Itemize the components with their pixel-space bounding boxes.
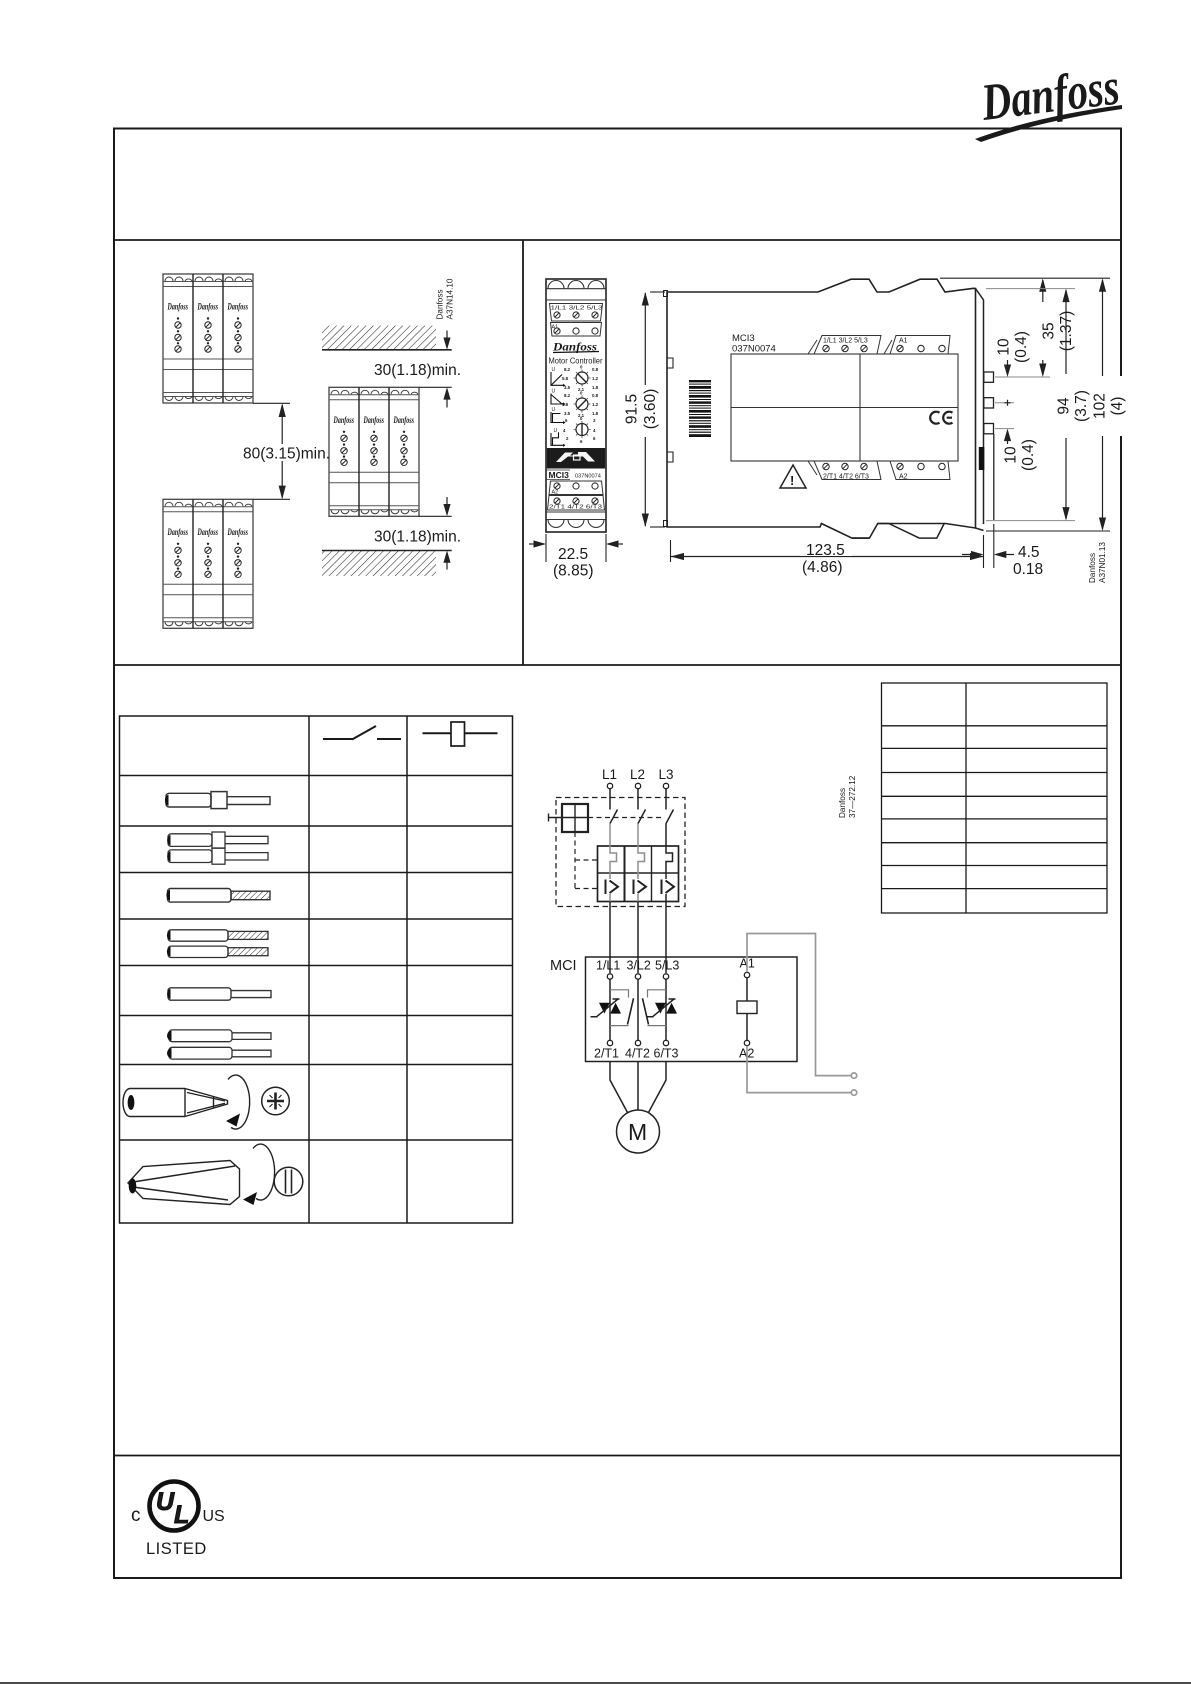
svg-text:1/L1 3/L2 5/L3: 1/L1 3/L2 5/L3	[823, 338, 868, 345]
svg-text:5/L3: 5/L3	[655, 959, 679, 973]
svg-text:2/T1: 2/T1	[594, 1047, 619, 1061]
svg-text:1/L1 3/L2 5/L3: 1/L1 3/L2 5/L3	[551, 306, 603, 312]
svg-text:1/L1: 1/L1	[596, 959, 620, 973]
svg-text:10: 10	[1003, 446, 1020, 464]
svg-text:30(1.18)min.: 30(1.18)min.	[374, 362, 461, 379]
svg-text:(8.85): (8.85)	[553, 563, 594, 580]
svg-text:1.8: 1.8	[592, 385, 599, 390]
svg-text:0.18: 0.18	[1013, 561, 1043, 578]
svg-text:2/T1 4/T2 6/T3: 2/T1 4/T2 6/T3	[549, 505, 602, 511]
svg-text:91.5: 91.5	[624, 394, 641, 424]
svg-text:(0.4): (0.4)	[1013, 331, 1030, 363]
svg-text:(4): (4)	[1109, 397, 1126, 416]
svg-text:M: M	[628, 1119, 647, 1145]
svg-text:L1: L1	[602, 767, 617, 782]
svg-text:US: US	[203, 1508, 225, 1525]
svg-text:4.5: 4.5	[1018, 544, 1040, 561]
svg-text:U: U	[552, 389, 556, 395]
svg-text:0.8: 0.8	[592, 393, 599, 398]
svg-text:30(1.18)min.: 30(1.18)min.	[374, 529, 461, 546]
svg-text:94: 94	[1056, 397, 1073, 415]
svg-text:Danfoss: Danfoss	[838, 788, 847, 818]
svg-text:c: c	[131, 1505, 141, 1526]
svg-text:L: L	[174, 1501, 189, 1529]
svg-text:LISTED: LISTED	[146, 1540, 207, 1558]
svg-text:U: U	[552, 367, 556, 373]
svg-text:6: 6	[580, 439, 583, 444]
svg-text:L2: L2	[630, 767, 645, 782]
svg-text:MCI3: MCI3	[549, 470, 570, 480]
svg-text:1.8: 1.8	[592, 411, 599, 416]
svg-text:A2: A2	[552, 490, 559, 496]
svg-text:22.5: 22.5	[558, 546, 588, 563]
svg-text:80(3.15)min.: 80(3.15)min.	[243, 446, 330, 463]
svg-text:Danfoss: Danfoss	[436, 289, 445, 319]
svg-text:(0.4): (0.4)	[1020, 439, 1037, 471]
svg-text:A2: A2	[899, 474, 908, 481]
svg-text:U: U	[156, 1488, 175, 1516]
svg-text:10: 10	[996, 338, 1013, 356]
svg-text:037N0074: 037N0074	[575, 474, 601, 480]
svg-text:Danfoss: Danfoss	[1088, 553, 1097, 583]
svg-text:37—272.12: 37—272.12	[848, 775, 857, 818]
svg-text:(4.86): (4.86)	[802, 559, 843, 576]
svg-text:6: 6	[565, 418, 568, 423]
svg-text:A1: A1	[899, 338, 908, 345]
svg-text:123.5: 123.5	[806, 542, 845, 559]
svg-text:102: 102	[1092, 393, 1109, 419]
svg-text:(3.60): (3.60)	[642, 389, 659, 430]
svg-text:3: 3	[593, 418, 596, 423]
svg-text:8.2: 8.2	[564, 393, 571, 398]
svg-text:CI-tronic: CI-tronic	[550, 464, 573, 470]
svg-text:4: 4	[593, 428, 596, 433]
svg-text:3/L2: 3/L2	[627, 959, 651, 973]
svg-text:0.8: 0.8	[592, 367, 599, 372]
svg-text:MCI3: MCI3	[732, 333, 755, 344]
svg-text:6: 6	[593, 436, 596, 441]
svg-text:MCI: MCI	[550, 958, 577, 974]
svg-text:3.5: 3.5	[564, 385, 571, 390]
svg-text:4/T2: 4/T2	[625, 1047, 650, 1061]
svg-text:U: U	[552, 407, 556, 413]
svg-text:1.2: 1.2	[592, 376, 599, 381]
svg-text:U: U	[554, 428, 558, 434]
svg-text:(3.7): (3.7)	[1073, 390, 1090, 422]
svg-text:1.2: 1.2	[592, 402, 599, 407]
svg-text:Motor Controller: Motor Controller	[549, 356, 603, 366]
svg-text:5.8: 5.8	[562, 376, 569, 381]
svg-text:35: 35	[1041, 322, 1058, 339]
svg-text:2/T1 4/T2 6/T3: 2/T1 4/T2 6/T3	[823, 474, 869, 481]
svg-text:6/T3: 6/T3	[654, 1047, 679, 1061]
svg-text:037N0074: 037N0074	[732, 344, 776, 355]
svg-text:TM: TM	[594, 460, 600, 465]
svg-text:3.5: 3.5	[564, 411, 571, 416]
svg-text:!: !	[790, 473, 794, 488]
svg-text:4: 4	[563, 428, 566, 433]
svg-text:8.2: 8.2	[564, 367, 571, 372]
svg-text:L3: L3	[659, 767, 674, 782]
svg-text:2: 2	[566, 436, 569, 441]
svg-text:A37N01.13: A37N01.13	[1098, 542, 1107, 583]
svg-text:A37N14.10: A37N14.10	[446, 278, 455, 319]
